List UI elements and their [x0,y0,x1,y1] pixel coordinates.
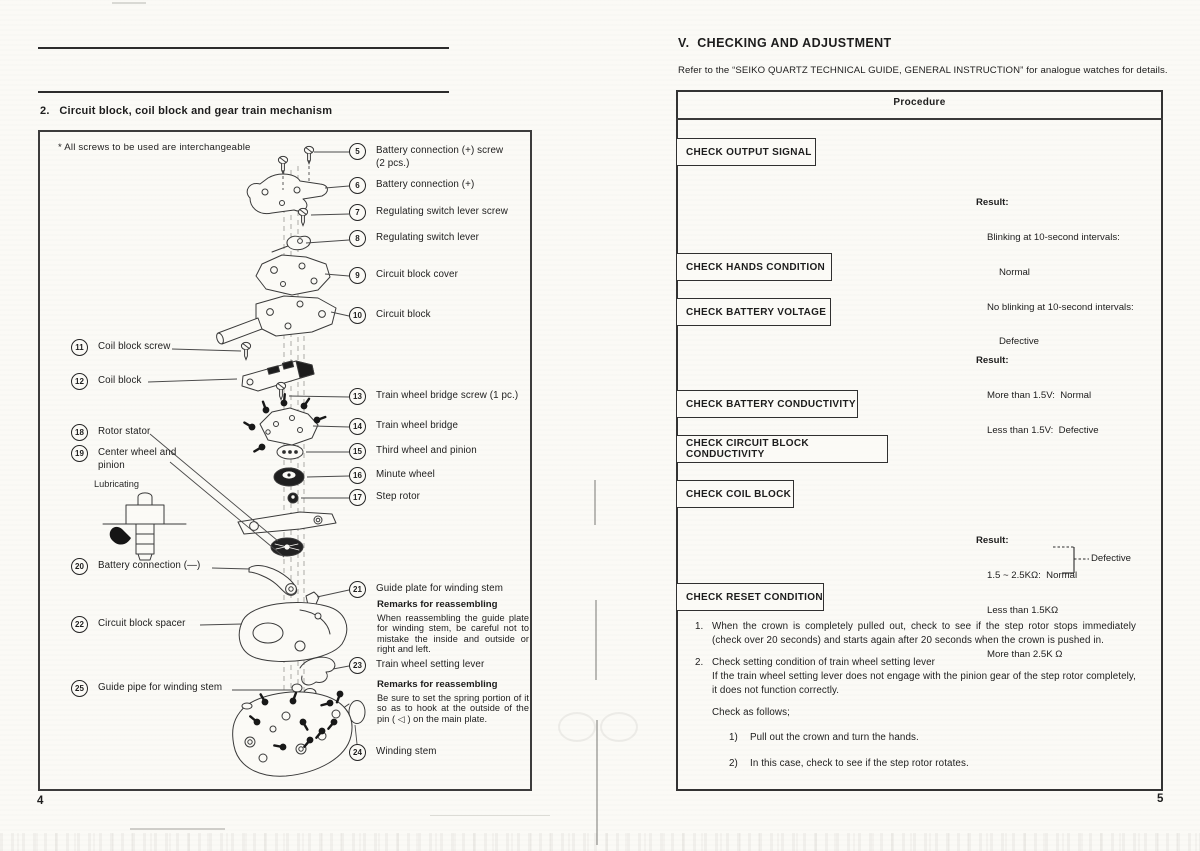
part-number-badge: 25 [71,680,88,697]
remarks-title: Remarks for reassembling [377,679,529,690]
scan-artifact [112,2,146,4]
part-number-badge: 12 [71,373,88,390]
procedure-table-header: Procedure [676,97,1163,108]
check-reset-condition-box: CHECK RESET CONDITION [676,583,824,611]
scan-artifact [600,712,638,742]
note-1-number: 1. [695,620,711,634]
part-label-24: 24 Winding stem [349,744,437,761]
part-label-12: 12 Coil block [71,373,141,390]
check-coil-block-box: CHECK COIL BLOCK [676,480,794,508]
scan-artifact [130,828,225,830]
part-number-badge: 13 [349,388,366,405]
left-section-heading: 2. Circuit block, coil block and gear tr… [40,105,332,117]
part-number-badge: 14 [349,418,366,435]
check-output-signal-box: CHECK OUTPUT SIGNAL [676,138,816,166]
part-label-17: 17 Step rotor [349,489,420,506]
part-number-badge: 18 [71,424,88,441]
remarks-body: Be sure to set the spring portion of it … [377,693,529,724]
part-number-badge: 24 [349,744,366,761]
part-label-7: 7 Regulating switch lever screw [349,204,508,221]
note-2-number: 2. [695,656,711,670]
substep-2-number: 2) [729,757,747,771]
note-2-line2: If the train wheel setting lever does no… [712,670,1136,697]
part-number-badge: 7 [349,204,366,221]
substep-1-text: Pull out the crown and turn the hands. [750,731,919,745]
scan-artifact [594,480,596,525]
right-section-title: V. CHECKING AND ADJUSTMENT [678,36,892,50]
result-battery-voltage: Result: More than 1.5V: Normal Less than… [976,332,1099,448]
page-number-right: 5 [1157,793,1163,805]
defective-branch-label: Defective [1091,553,1131,564]
top-rule-2 [38,91,449,93]
part-label-9: 9 Circuit block cover [349,267,458,284]
part-label-13: 13 Train wheel bridge screw (1 pc.) [349,388,518,405]
part-label-5: 5 Battery connection (+) screw(2 pcs.) [349,143,503,170]
remarks-guide-plate: Remarks for reassembling When reassembli… [377,599,529,655]
note-2-line1: Check setting condition of train wheel s… [712,656,1136,670]
check-hands-condition-box: CHECK HANDS CONDITION [676,253,832,281]
part-number-badge: 19 [71,445,88,462]
part-label-22: 22 Circuit block spacer [71,616,185,633]
part-number-badge: 23 [349,657,366,674]
part-number-badge: 6 [349,177,366,194]
scan-artifact [595,600,597,680]
check-battery-conductivity-box: CHECK BATTERY CONDUCTIVITY [676,390,858,418]
part-label-18: 18 Rotor stator [71,424,150,441]
part-label-15: 15 Third wheel and pinion [349,443,477,460]
defective-bracket [1050,540,1096,578]
part-label-19: 19 Center wheel andpinion [71,445,176,472]
part-label-21: 21 Guide plate for winding stem [349,581,503,598]
scan-artifact [430,815,550,816]
part-number-badge: 22 [71,616,88,633]
scanned-manual-spread: { "left_page": { "heading": "2. Circuit … [0,0,1200,851]
part-number-badge: 10 [349,307,366,324]
check-as-follows: Check as follows; [712,706,790,720]
right-section-subtitle: Refer to the “SEIKO QUARTZ TECHNICAL GUI… [678,65,1168,76]
part-label-23: 23 Train wheel setting lever [349,657,484,674]
part-number-badge: 20 [71,558,88,575]
procedure-header-rule [676,118,1163,120]
part-number-badge: 21 [349,581,366,598]
scan-artifact [596,720,598,845]
check-battery-voltage-box: CHECK BATTERY VOLTAGE [676,298,831,326]
note-1-text: When the crown is completely pulled out,… [712,620,1136,647]
part-label-20: 20 Battery connection (—) [71,558,200,575]
part-number-badge: 8 [349,230,366,247]
part-label-6: 6 Battery connection (+) [349,177,474,194]
remarks-body: When reassembling the guide plate for wi… [377,613,529,655]
part-label-11: 11 Coil block screw [71,339,170,356]
part-label-25: 25 Guide pipe for winding stem [71,680,222,697]
part-label-16: 16 Minute wheel [349,467,435,484]
substep-1-number: 1) [729,731,747,745]
part-number-badge: 5 [349,143,366,160]
part-number-badge: 15 [349,443,366,460]
scan-noise-band [0,833,1200,851]
result-coil-block: Result: 1.5 ~ 2.5KΩ: Normal Less than 1.… [976,512,1077,672]
check-circuit-block-conductivity-box: CHECK CIRCUIT BLOCK CONDUCTIVITY [676,435,888,463]
scan-artifact [558,712,596,742]
part-number-badge: 11 [71,339,88,356]
remarks-title: Remarks for reassembling [377,599,529,610]
part-label-10: 10 Circuit block [349,307,431,324]
substep-2-text: In this case, check to see if the step r… [750,757,969,771]
part-number-badge: 17 [349,489,366,506]
part-label-8: 8 Regulating switch lever [349,230,479,247]
top-rule-1 [38,47,449,49]
part-number-badge: 9 [349,267,366,284]
page-number-left: 4 [37,795,43,807]
remarks-setting-lever: Remarks for reassembling Be sure to set … [377,679,529,724]
part-number-badge: 16 [349,467,366,484]
part-label-14: 14 Train wheel bridge [349,418,458,435]
